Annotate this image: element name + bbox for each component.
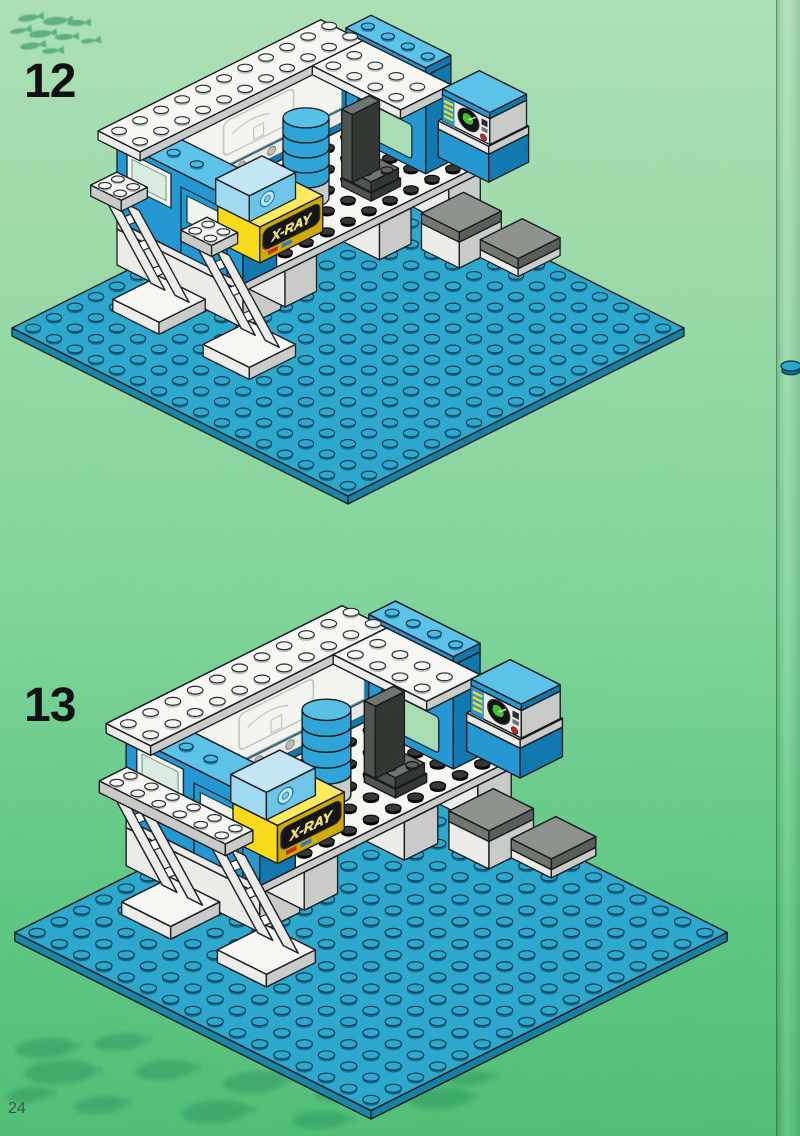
lego-model-step-12: X-RAY (0, 0, 760, 560)
instruction-page: 12 X-RAY 13 X-RAY 24 (0, 0, 800, 1136)
lego-model-step-13: X-RAY (0, 588, 800, 1136)
stud-shape (781, 361, 800, 375)
page-edge-stud (780, 356, 800, 380)
page-number: 24 (8, 1100, 26, 1118)
